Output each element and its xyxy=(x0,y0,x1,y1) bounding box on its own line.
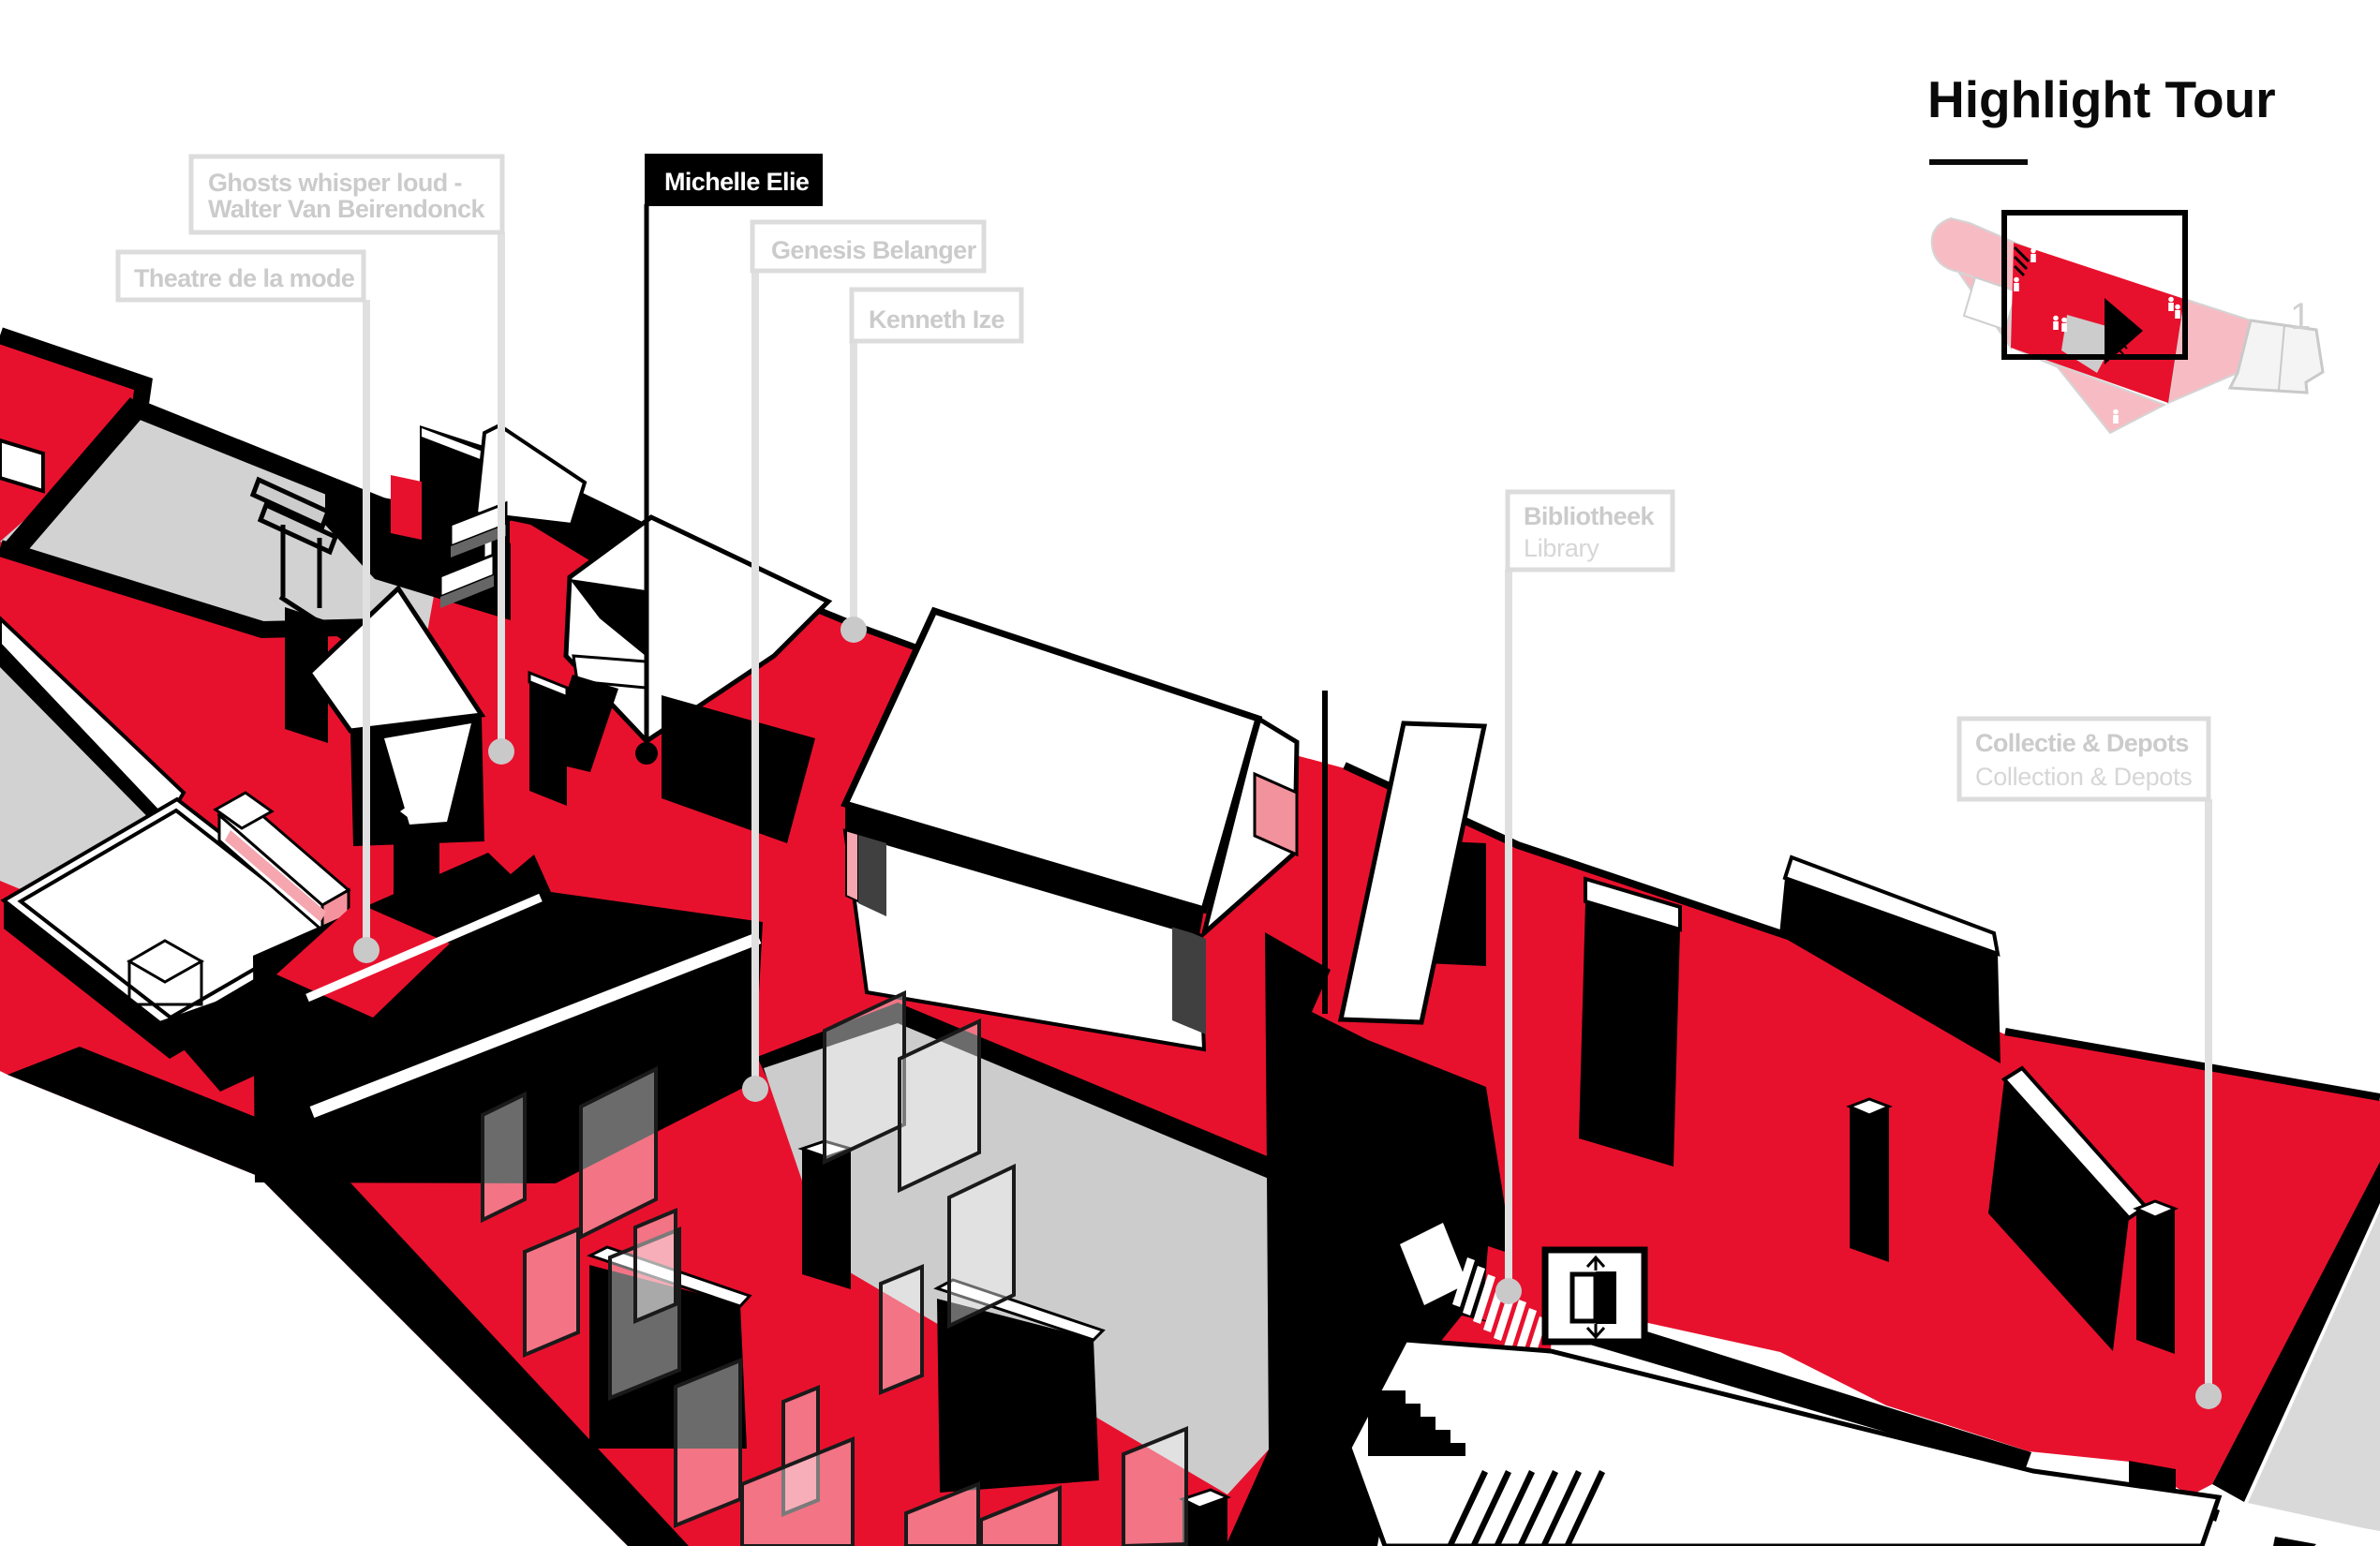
svg-text:Library: Library xyxy=(1524,534,1599,562)
svg-text:Michelle Elie: Michelle Elie xyxy=(664,168,810,196)
svg-text:Ghosts whisper loud -: Ghosts whisper loud - xyxy=(208,169,462,197)
svg-text:Collection & Depots: Collection & Depots xyxy=(1975,763,2192,791)
svg-text:Walter Van Beirendonck: Walter Van Beirendonck xyxy=(208,195,485,223)
svg-text:Collectie & Depots: Collectie & Depots xyxy=(1975,729,2189,757)
svg-text:Theatre de la mode: Theatre de la mode xyxy=(134,264,355,292)
svg-text:Bibliotheek: Bibliotheek xyxy=(1524,502,1656,530)
svg-text:Highlight Tour: Highlight Tour xyxy=(1927,70,2276,128)
svg-text:1: 1 xyxy=(2290,296,2311,337)
svg-text:Genesis Belanger: Genesis Belanger xyxy=(771,236,977,264)
svg-text:Kenneth Ize: Kenneth Ize xyxy=(869,305,1005,334)
